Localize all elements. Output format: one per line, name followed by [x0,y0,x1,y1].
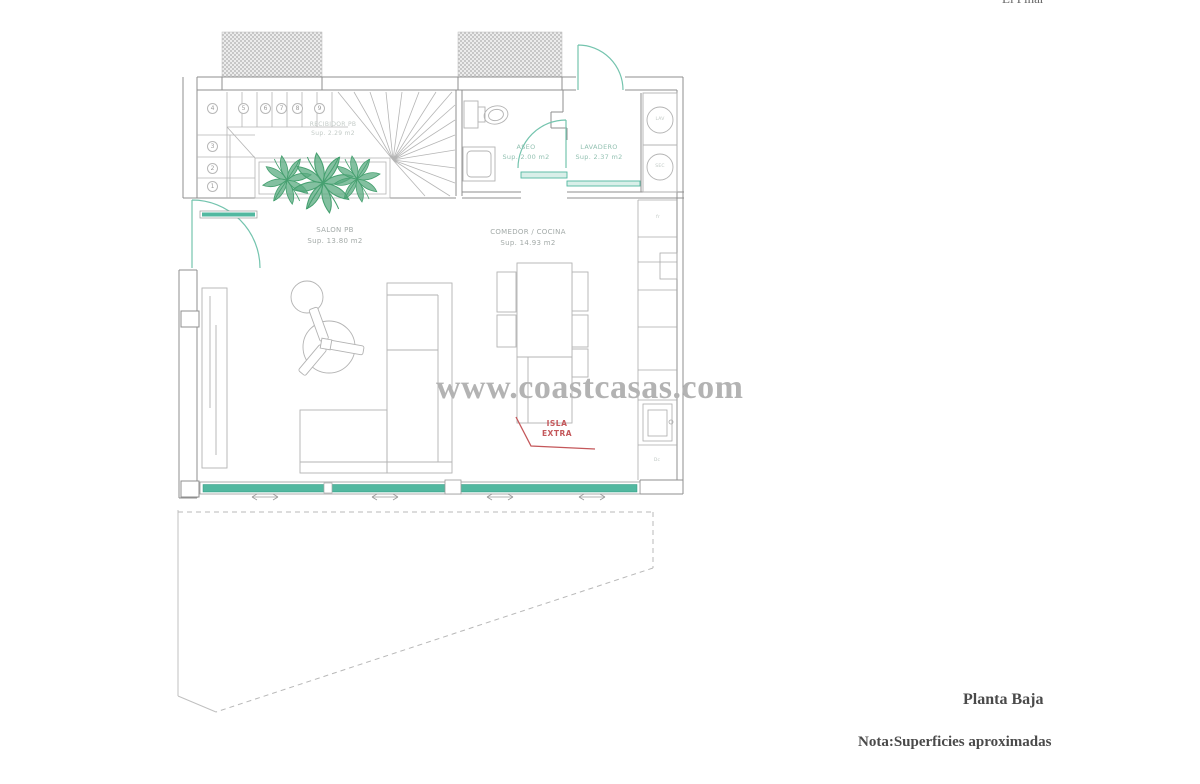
watermark-text: www.coastcasas.com [436,369,766,407]
aseo-fixtures [463,101,510,181]
terrace-outline [178,510,653,712]
room-label-comedor: COMEDOR / COCINA Sup. 14.93 m2 [475,227,581,249]
stair-step-number: 7 [276,103,287,114]
washer-dryer [643,93,677,192]
plan-title: Planta Baja [963,691,1043,709]
stair-step-number: 8 [292,103,303,114]
top-right-partial-label: El Pinar [1002,0,1102,6]
base-unit-label: Dc [650,458,664,463]
top-right-partial-text: El Pinar [1002,0,1102,6]
sofa [300,283,452,473]
island-annotation-line2: EXTRA [528,429,586,439]
room-area: Sup. 2.37 m2 [566,152,632,162]
dimension-arrows [252,494,605,500]
armchair [291,281,364,376]
plan-note: Nota:Superficies aproximadas [858,734,1051,751]
stair-step-number: 6 [260,103,271,114]
room-name: LAVADERO [566,142,632,152]
fridge-label: fr [651,215,665,220]
stair-step-number: 5 [238,103,249,114]
room-name: ASEO [498,142,554,152]
stair-step-number: 2 [207,163,218,174]
island-annotation-line1: ISLA [528,419,586,429]
kitchen-counter [638,200,677,480]
door-arc-entrance [578,45,623,90]
window-sill-left [200,211,257,218]
room-label-salon: SALON PB Sup. 13.80 m2 [293,225,377,247]
stair-step-number: 4 [207,103,218,114]
room-area: Sup. 2.29 m2 [293,129,373,138]
room-area: Sup. 2.00 m2 [498,152,554,162]
stair-step-number: 3 [207,141,218,152]
door-arc-salon [192,200,260,268]
room-label-lavadero: LAVADERO Sup. 2.37 m2 [566,142,632,162]
room-name: RECIBIDOR PB [293,120,373,129]
room-label-aseo: ASEO Sup. 2.00 m2 [498,142,554,162]
window-band-bottom [200,480,640,494]
room-label-recibidor: RECIBIDOR PB Sup. 2.29 m2 [293,120,373,138]
room-area: Sup. 14.93 m2 [475,238,581,249]
room-area: Sup. 13.80 m2 [293,236,377,247]
walls [179,77,684,498]
stair-step-number: 1 [207,181,218,192]
stair-step-number: 9 [314,103,325,114]
floor-plan-page: El Pinar 4 5 6 7 8 9 3 2 1 RECIBIDOR PB … [0,0,1200,784]
island-annotation: ISLA EXTRA [528,419,586,439]
room-name: SALON PB [293,225,377,236]
room-name: COMEDOR / COCINA [475,227,581,238]
hatched-wall-blocks [222,32,562,77]
washer-label: LAV [648,117,672,122]
lavadero-sliding-door [521,172,640,186]
tv-unit [202,288,227,468]
dryer-label: SEC [648,164,672,169]
